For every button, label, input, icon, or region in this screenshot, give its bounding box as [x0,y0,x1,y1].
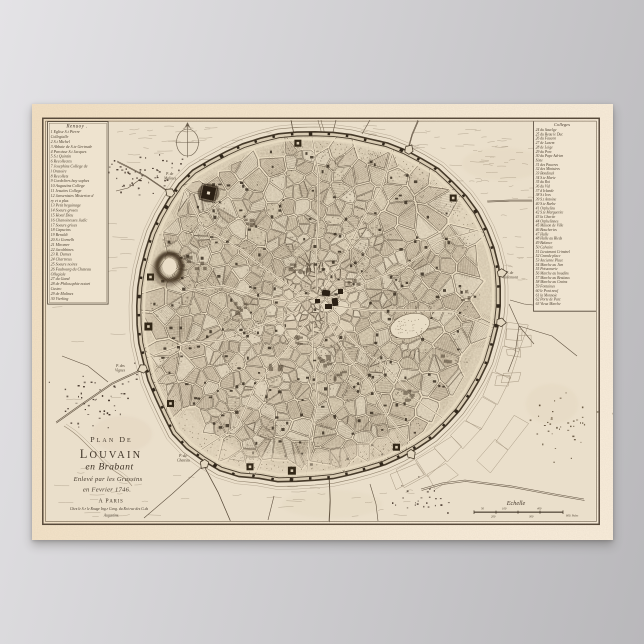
svg-text:40 S.te Barbe: 40 S.te Barbe [536,201,556,205]
svg-text:36 du Vid: 36 du Vid [536,184,550,188]
svg-text:200: 200 [491,514,496,518]
svg-text:Colleges: Colleges [554,122,570,127]
svg-text:en Brabant: en Brabant [85,461,133,472]
svg-text:Malines: Malines [163,176,177,180]
svg-text:Echelle: Echelle [506,500,526,507]
svg-text:Augustins.: Augustins. [103,513,120,517]
svg-text:42 S.te Marguerite: 42 S.te Marguerite [536,210,564,214]
svg-text:50 Calvaire: 50 Calvaire [536,245,554,249]
svg-text:56 Marche au boudins: 56 Marche au boudins [536,271,570,275]
svg-text:A PARIS: A PARIS [98,498,123,504]
svg-text:P. de: P. de [165,172,174,176]
svg-text:28 de Leige: 28 de Leige [536,145,554,149]
svg-text:54 Marche au Jien: 54 Marche au Jien [536,262,564,266]
svg-text:34 S.te Marie: 34 S.te Marie [536,175,556,179]
svg-text:44 Orphelinnes: 44 Orphelinnes [536,219,559,223]
svg-text:Chateau: Chateau [177,458,190,462]
svg-text:30 Vierling: 30 Vierling [51,295,69,300]
svg-text:en Fevrier 1746.: en Fevrier 1746. [83,486,131,493]
svg-text:P. des: P. des [115,364,125,368]
svg-text:26 du Faucon: 26 du Faucon [536,136,557,140]
svg-text:Enlevé par les Grassins: Enlevé par les Grassins [73,476,143,483]
svg-text:30 du Pape Adrien: 30 du Pape Adrien [536,154,564,158]
svg-text:600. Pales: 600. Pales [566,513,579,517]
svg-text:63 Vieux Marche: 63 Vieux Marche [536,302,561,306]
svg-text:400: 400 [537,506,542,510]
svg-text:300: 300 [529,514,534,518]
svg-text:46 Boucheries: 46 Boucheries [536,228,558,232]
svg-text:100: 100 [502,506,507,510]
svg-text:58 Marche au Grains: 58 Marche au Grains [536,280,568,284]
svg-text:Vignes: Vignes [115,368,126,372]
svg-text:Chez le S.r le Rouge Ing.r Geo: Chez le S.r le Rouge Ing.r Geog. du Roi … [70,507,149,511]
svg-text:P. du: P. du [178,454,187,458]
svg-text:62 Porte de Parc: 62 Porte de Parc [536,297,562,301]
svg-text:LOUVAIN: LOUVAIN [80,447,143,461]
svg-text:38 S.t Ives: 38 S.t Ives [536,193,552,197]
svg-text:60 le Pont neuf: 60 le Pont neuf [536,288,559,292]
svg-text:31 des Pauvres: 31 des Pauvres [536,162,559,166]
svg-text:24 du Sauclge: 24 du Sauclge [536,128,557,132]
svg-text:P. de: P. de [505,271,514,275]
svg-text:52 Grande place: 52 Grande place [536,254,561,258]
svg-text:48 Halle au Bleds: 48 Halle au Bleds [536,236,563,240]
svg-text:Tirlemont: Tirlemont [503,275,519,279]
